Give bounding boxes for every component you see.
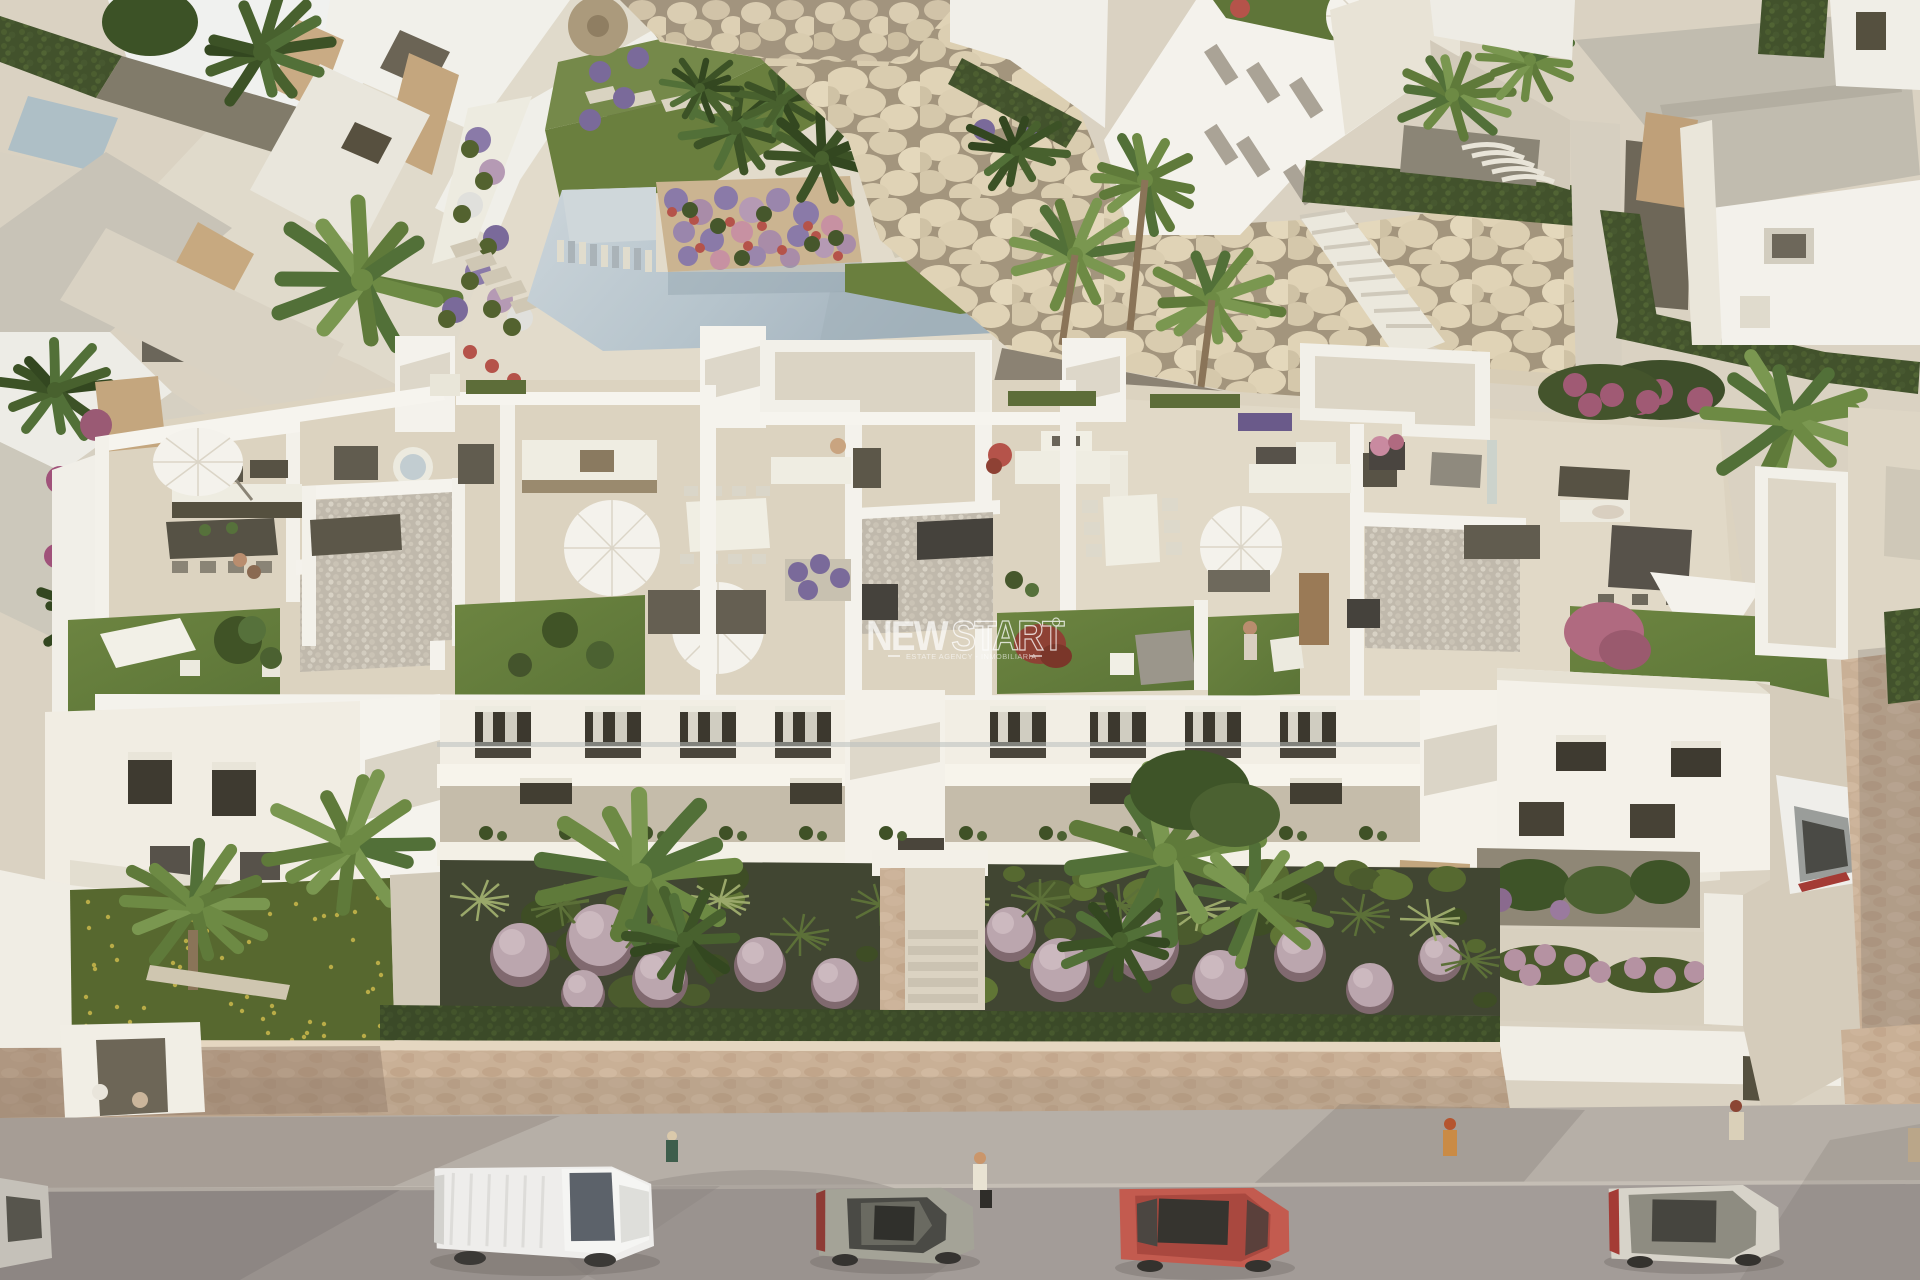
svg-text:ESTATE AGENCY - INMOBILIARIA: ESTATE AGENCY - INMOBILIARIA <box>906 652 1037 661</box>
